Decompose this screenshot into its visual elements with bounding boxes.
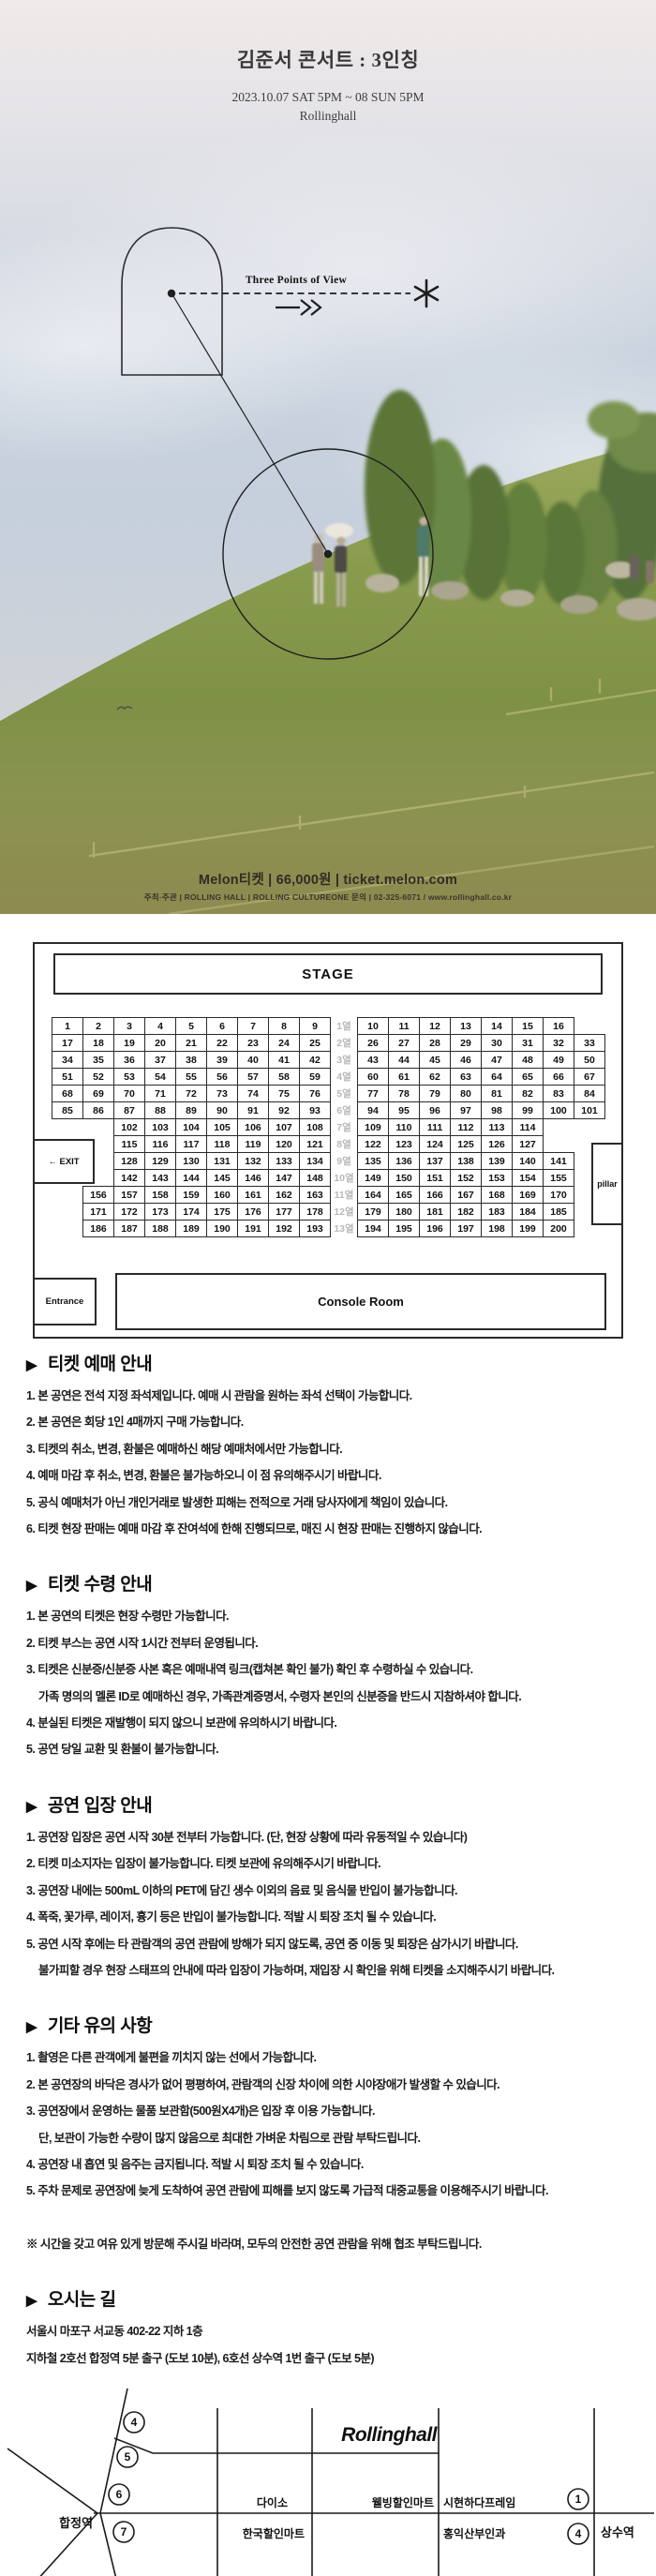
- seat: 118: [206, 1135, 238, 1153]
- seat: 128: [113, 1152, 145, 1170]
- hero-photo: Three Points of View 김준서 콘서트 : 3인칭 2023.…: [0, 0, 656, 914]
- seat: 13: [450, 1017, 482, 1035]
- seat: 167: [450, 1186, 482, 1204]
- seat: 110: [388, 1118, 420, 1136]
- seat: 182: [450, 1203, 482, 1221]
- seat: 157: [113, 1186, 145, 1204]
- seat: 153: [481, 1169, 513, 1187]
- seat: 147: [268, 1169, 300, 1187]
- seat: 200: [543, 1220, 574, 1237]
- event-date: 2023.10.07 SAT 5PM ~ 08 SUN 5PM: [0, 90, 656, 105]
- seat: 28: [419, 1034, 451, 1052]
- seat: 95: [388, 1101, 420, 1119]
- seat: 132: [237, 1152, 269, 1170]
- entrance-box: Entrance: [33, 1278, 97, 1325]
- seat: 34: [52, 1051, 83, 1069]
- seat: 31: [512, 1034, 544, 1052]
- seat-row: 18618718818919019119219313열1941951961971…: [52, 1220, 605, 1237]
- page-title: 김준서 콘서트 : 3인칭: [0, 0, 656, 73]
- row-label: 1열: [331, 1017, 357, 1035]
- seat: 89: [175, 1101, 207, 1119]
- section-title: ▶ 티켓 수령 안내: [26, 1570, 630, 1595]
- pillar-box: pillar: [591, 1143, 623, 1225]
- seat: 70: [113, 1085, 145, 1102]
- exit-5-badge: 5: [125, 2450, 131, 2464]
- seat: 61: [388, 1068, 420, 1086]
- seat: 29: [450, 1034, 482, 1052]
- info-line: 2. 본 공연장의 바닥은 경사가 없어 평평하여, 관람객의 신장 차이에 의…: [26, 2072, 630, 2098]
- seat: 8: [268, 1017, 300, 1035]
- row-label: 4열: [331, 1068, 357, 1086]
- console-room-label: Console Room: [318, 1295, 404, 1309]
- seat: 148: [299, 1169, 331, 1187]
- info-sections: ▶ 티켓 예매 안내1. 본 공연은 전석 지정 좌석제입니다. 예매 시 관람…: [0, 1350, 656, 2205]
- seat: 179: [357, 1203, 389, 1221]
- viewpoint-overlay: Three Points of View: [0, 0, 656, 914]
- seat: 87: [113, 1101, 145, 1119]
- seat: 111: [419, 1118, 451, 1136]
- seat: 18: [82, 1034, 114, 1052]
- stage-box: STAGE: [53, 953, 603, 995]
- seat: 16: [543, 1017, 574, 1035]
- seat: 108: [299, 1118, 331, 1136]
- row-label: 12열: [331, 1203, 357, 1221]
- map-hapjeong-label: 합정역: [59, 2516, 93, 2530]
- ticket-price-line: Melon티켓 | 66,000원 | ticket.melon.com: [0, 869, 656, 889]
- triangle-bullet-icon: ▶: [26, 1357, 37, 1373]
- seat: 160: [206, 1186, 238, 1204]
- seat: 113: [481, 1118, 513, 1136]
- info-section: ▶ 티켓 예매 안내1. 본 공연은 전석 지정 좌석제입니다. 예매 시 관람…: [26, 1350, 630, 1542]
- seat: 117: [175, 1135, 207, 1153]
- seat: 134: [299, 1152, 331, 1170]
- seat: 20: [144, 1034, 176, 1052]
- seat: 22: [206, 1034, 238, 1052]
- seat: 154: [512, 1169, 544, 1187]
- seat: 119: [237, 1135, 269, 1153]
- seat: 161: [237, 1186, 269, 1204]
- seat: 7: [237, 1017, 269, 1035]
- info-line: 2. 본 공연은 회당 1인 4매까지 구매 가능합니다.: [26, 1409, 630, 1435]
- seat: 77: [357, 1085, 389, 1102]
- seat: 35: [82, 1051, 114, 1069]
- seat: 40: [237, 1051, 269, 1069]
- exit-1-right-badge: 1: [575, 2493, 582, 2506]
- seat: 60: [357, 1068, 389, 1086]
- seat: 96: [419, 1101, 451, 1119]
- seat: 155: [543, 1169, 574, 1187]
- seat: 105: [206, 1118, 238, 1136]
- seat: 9: [299, 1017, 331, 1035]
- seat: 62: [419, 1068, 451, 1086]
- map-rollinghall-logo: Rollinghall: [341, 2424, 438, 2446]
- seat: 26: [357, 1034, 389, 1052]
- seat: 49: [543, 1051, 574, 1069]
- seat: 178: [299, 1203, 331, 1221]
- seat: 103: [144, 1118, 176, 1136]
- diagonal-sightline: [173, 296, 327, 552]
- seat: 94: [357, 1101, 389, 1119]
- seat: 135: [357, 1152, 389, 1170]
- info-section: ▶ 기타 유의 사항1. 촬영은 다른 관객에게 불편을 끼치지 않는 선에서 …: [26, 2012, 630, 2204]
- directions-title: ▶ 오시는 길: [26, 2285, 630, 2311]
- triangle-bullet-icon: ▶: [26, 1799, 37, 1815]
- section-title-text: 티켓 예매 안내: [43, 1355, 152, 1374]
- notice-line: ※ 시간을 갖고 여유 있게 방문해 주시길 바라며, 모두의 안전한 공연 관…: [26, 2231, 630, 2257]
- seat: 104: [175, 1118, 207, 1136]
- seat: 199: [512, 1220, 544, 1237]
- seat: 133: [268, 1152, 300, 1170]
- seat: 193: [299, 1220, 331, 1237]
- seat: 41: [268, 1051, 300, 1069]
- seat: 183: [481, 1203, 513, 1221]
- seat: 101: [574, 1101, 605, 1119]
- seat: 5: [175, 1017, 207, 1035]
- seat: 168: [481, 1186, 513, 1204]
- double-arrow-icon: [276, 300, 321, 315]
- seat: 181: [419, 1203, 451, 1221]
- seat: 4: [144, 1017, 176, 1035]
- exit-box: ← EXIT: [33, 1139, 95, 1184]
- seat: 32: [543, 1034, 574, 1052]
- seat: 52: [82, 1068, 114, 1086]
- seat: 46: [450, 1051, 482, 1069]
- seat: 33: [574, 1034, 605, 1052]
- seat-row: 1281291301311321331349열13513613713813914…: [52, 1152, 605, 1170]
- seat: 114: [512, 1118, 544, 1136]
- info-line: 가족 명의의 멜론 ID로 예매하신 경우, 가족관계증명서, 수령자 본인의 …: [26, 1684, 630, 1710]
- pillar-label: pillar: [597, 1179, 618, 1189]
- seat: 39: [206, 1051, 238, 1069]
- seat: 84: [574, 1085, 605, 1102]
- seat: 123: [388, 1135, 420, 1153]
- seat: 14: [481, 1017, 513, 1035]
- info-line: 1. 본 공연은 전석 지정 좌석제입니다. 예매 시 관람을 원하는 좌석 선…: [26, 1383, 630, 1409]
- seat: 66: [543, 1068, 574, 1086]
- seat: 91: [237, 1101, 269, 1119]
- seat: 37: [144, 1051, 176, 1069]
- seat: 195: [388, 1220, 420, 1237]
- section-title-text: 기타 유의 사항: [43, 2016, 152, 2036]
- seat: 1: [52, 1017, 83, 1035]
- seat: 57: [237, 1068, 269, 1086]
- seat: 100: [543, 1101, 574, 1119]
- seat: 44: [388, 1051, 420, 1069]
- map-hongik-clinic-label: 홍익산부인과: [443, 2526, 505, 2540]
- seat: 64: [481, 1068, 513, 1086]
- seat: 6: [206, 1017, 238, 1035]
- seat-row-indent: [52, 1118, 113, 1136]
- seat: 75: [268, 1085, 300, 1102]
- seat: 139: [481, 1152, 513, 1170]
- notice-wrap: ※ 시간을 갖고 여유 있게 방문해 주시길 바라며, 모두의 안전한 공연 관…: [0, 2231, 656, 2372]
- seat: 150: [388, 1169, 420, 1187]
- venue-name: Rollinghall: [0, 109, 656, 124]
- seat: 73: [206, 1085, 238, 1102]
- seat: 30: [481, 1034, 513, 1052]
- seat: 24: [268, 1034, 300, 1052]
- seat: 42: [299, 1051, 331, 1069]
- seat: 27: [388, 1034, 420, 1052]
- seat-row-indent: [52, 1203, 82, 1221]
- seat: 112: [450, 1118, 482, 1136]
- seating-chart: STAGE 1234567891열10111213141516171819202…: [33, 942, 623, 1339]
- seat: 196: [419, 1220, 451, 1237]
- seat: 65: [512, 1068, 544, 1086]
- seat: 82: [512, 1085, 544, 1102]
- row-label: 8열: [331, 1135, 357, 1153]
- seat: 81: [481, 1085, 513, 1102]
- row-label: 13열: [331, 1220, 357, 1237]
- asterisk-marker: [415, 280, 438, 307]
- seat: 19: [113, 1034, 145, 1052]
- seat: 194: [357, 1220, 389, 1237]
- map-daiso-label: 다이소: [257, 2495, 288, 2509]
- row-label: 2열: [331, 1034, 357, 1052]
- seat: 59: [299, 1068, 331, 1086]
- overlay-label: Three Points of View: [246, 275, 348, 286]
- seat: 152: [450, 1169, 482, 1187]
- seat: 170: [543, 1186, 574, 1204]
- focus-dot: [324, 550, 332, 558]
- seat: 120: [268, 1135, 300, 1153]
- seat-row: 15615715815916016116216311열1641651661671…: [52, 1186, 605, 1204]
- info-line: 3. 티켓은 신분증/신분증 사본 혹은 예매내역 링크(캡쳐본 확인 불가) …: [26, 1656, 630, 1683]
- seat: 136: [388, 1152, 420, 1170]
- seat: 83: [543, 1085, 574, 1102]
- viewpoint-dot: [168, 290, 175, 297]
- seat: 180: [388, 1203, 420, 1221]
- seat: 109: [357, 1118, 389, 1136]
- info-line: 1. 본 공연의 티켓은 현장 수령만 가능합니다.: [26, 1603, 630, 1629]
- seat: 72: [175, 1085, 207, 1102]
- seat: 174: [175, 1203, 207, 1221]
- seat: 141: [543, 1152, 574, 1170]
- info-line: 2. 티켓 미소지자는 입장이 불가능합니다. 티켓 보관에 유의해주시기 바랍…: [26, 1850, 630, 1877]
- exit-6-badge: 6: [116, 2488, 123, 2501]
- concert-info-poster: Three Points of View 김준서 콘서트 : 3인칭 2023.…: [0, 0, 656, 2576]
- seat-row: 17117217317417517617717812열1791801811821…: [52, 1203, 605, 1221]
- section-title-text: 티켓 수령 안내: [43, 1575, 152, 1595]
- seat: 165: [388, 1186, 420, 1204]
- info-line: 5. 공연 당일 교환 및 환불이 불가능합니다.: [26, 1736, 630, 1762]
- seat: 137: [419, 1152, 451, 1170]
- seat: 10: [357, 1017, 389, 1035]
- seat: 127: [512, 1135, 544, 1153]
- seat: 130: [175, 1152, 207, 1170]
- seat: 38: [175, 1051, 207, 1069]
- row-label: 6열: [331, 1101, 357, 1119]
- info-section: ▶ 공연 입장 안내1. 공연장 입장은 공연 시작 30분 전부터 가능합니다…: [26, 1791, 630, 1984]
- seat: 188: [144, 1220, 176, 1237]
- map-sangsu-label: 상수역: [601, 2525, 634, 2539]
- seat: 116: [144, 1135, 176, 1153]
- info-line: 단, 보관이 가능한 수량이 많지 않음으로 최대한 가벼운 차림으로 관람 부…: [26, 2125, 630, 2151]
- seat-row: 14214314414514614714810열1491501511521531…: [52, 1169, 605, 1187]
- seat: 69: [82, 1085, 114, 1102]
- seat: 102: [113, 1118, 145, 1136]
- row-label: 11열: [331, 1186, 357, 1204]
- row-label: 5열: [331, 1085, 357, 1102]
- seat: 93: [299, 1101, 331, 1119]
- seat: 176: [237, 1203, 269, 1221]
- seat: 92: [268, 1101, 300, 1119]
- directions-map: Rollinghall 합정역 상수역 다이소 웰빙할인마트 시현하다프레임 한…: [0, 2385, 656, 2576]
- seat-row: 1021031041051061071087열10911011111211311…: [52, 1118, 605, 1136]
- seat: 177: [268, 1203, 300, 1221]
- seat: 198: [481, 1220, 513, 1237]
- seat: 17: [52, 1034, 83, 1052]
- seat: 151: [419, 1169, 451, 1187]
- seat: 145: [206, 1169, 238, 1187]
- ticket-caption: Melon티켓 | 66,000원 | ticket.melon.com 주최·…: [0, 869, 656, 903]
- seat: 189: [175, 1220, 207, 1237]
- info-line: 3. 공연장 내에는 500mL 이하의 PET에 담긴 생수 이외의 음료 및…: [26, 1878, 630, 1904]
- seat: 186: [82, 1220, 114, 1237]
- seat-row: 1234567891열10111213141516: [52, 1017, 605, 1035]
- subway-line: 지하철 2호선 합정역 5분 출구 (도보 10분), 6호선 상수역 1번 출…: [26, 2345, 630, 2372]
- map-hanguk-mart-label: 한국할인마트: [243, 2526, 305, 2540]
- console-room-box: Console Room: [115, 1273, 606, 1330]
- seat: 67: [574, 1068, 605, 1086]
- triangle-bullet-icon: ▶: [26, 2293, 37, 2309]
- seat: 97: [450, 1101, 482, 1119]
- seat: 88: [144, 1101, 176, 1119]
- exit-4-left-badge: 4: [131, 2416, 138, 2429]
- seat: 169: [512, 1186, 544, 1204]
- seat: 172: [113, 1203, 145, 1221]
- seat: 74: [237, 1085, 269, 1102]
- seat-row: 1718192021222324252열2627282930313233: [52, 1034, 605, 1052]
- seat: 3: [113, 1017, 145, 1035]
- seat: 79: [419, 1085, 451, 1102]
- seat: 47: [481, 1051, 513, 1069]
- organizer-line: 주최·주관 | ROLLING HALL | ROLLING CULTUREON…: [0, 891, 656, 903]
- info-line: 5. 공연 시작 후에는 타 관람객의 공연 관람에 방해가 되지 않도록, 공…: [26, 1931, 630, 1957]
- seat: 45: [419, 1051, 451, 1069]
- seat: 190: [206, 1220, 238, 1237]
- row-label: 10열: [331, 1169, 357, 1187]
- seat: 90: [206, 1101, 238, 1119]
- section-title: ▶ 티켓 예매 안내: [26, 1350, 630, 1375]
- seat: 106: [237, 1118, 269, 1136]
- seat: 78: [388, 1085, 420, 1102]
- seat: 54: [144, 1068, 176, 1086]
- seat: 156: [82, 1186, 114, 1204]
- exit-7-badge: 7: [121, 2525, 127, 2539]
- seat: 191: [237, 1220, 269, 1237]
- entrance-label: Entrance: [46, 1296, 84, 1307]
- poster-header: 김준서 콘서트 : 3인칭 2023.10.07 SAT 5PM ~ 08 SU…: [0, 0, 656, 124]
- seat: 50: [574, 1051, 605, 1069]
- seat: 146: [237, 1169, 269, 1187]
- info-section: ▶ 티켓 수령 안내1. 본 공연의 티켓은 현장 수령만 가능합니다.2. 티…: [26, 1570, 630, 1762]
- seat: 158: [144, 1186, 176, 1204]
- seat: 163: [299, 1186, 331, 1204]
- seat: 149: [357, 1169, 389, 1187]
- stage-label: STAGE: [302, 966, 354, 982]
- row-label: 9열: [331, 1152, 357, 1170]
- seat: 175: [206, 1203, 238, 1221]
- row-label: 7열: [331, 1118, 357, 1136]
- info-line: 4. 분실된 티켓은 재발행이 되지 않으니 보관에 유의하시기 바랍니다.: [26, 1710, 630, 1736]
- seat-row: 5152535455565758594열6061626364656667: [52, 1068, 605, 1086]
- address-line: 서울시 마포구 서교동 402-22 지하 1층: [26, 2318, 630, 2344]
- seat: 58: [268, 1068, 300, 1086]
- seat: 2: [82, 1017, 114, 1035]
- seat: 126: [481, 1135, 513, 1153]
- seat: 11: [388, 1017, 420, 1035]
- seat: 99: [512, 1101, 544, 1119]
- seat-grid: 1234567891열10111213141516171819202122232…: [52, 1017, 605, 1237]
- seat: 51: [52, 1068, 83, 1086]
- map-roads: [7, 2389, 654, 2576]
- exit-label: ← EXIT: [48, 1157, 79, 1167]
- seat: 122: [357, 1135, 389, 1153]
- info-line: 불가피할 경우 현장 스태프의 안내에 따라 입장이 가능하며, 재입장 시 확…: [26, 1957, 630, 1984]
- seat: 107: [268, 1118, 300, 1136]
- seat-row: 6869707172737475765열7778798081828384: [52, 1085, 605, 1102]
- seat: 23: [237, 1034, 269, 1052]
- seat: 71: [144, 1085, 176, 1102]
- info-line: 3. 티켓의 취소, 변경, 환불은 예매하신 해당 예매처에서만 가능합니다.: [26, 1436, 630, 1462]
- seat: 12: [419, 1017, 451, 1035]
- info-line: 3. 공연장에서 운영하는 물품 보관함(500원X4개)은 입장 후 이용 가…: [26, 2098, 630, 2124]
- seat: 197: [450, 1220, 482, 1237]
- seat: 121: [299, 1135, 331, 1153]
- seat: 86: [82, 1101, 114, 1119]
- seat: 144: [175, 1169, 207, 1187]
- seat: 80: [450, 1085, 482, 1102]
- seat: 184: [512, 1203, 544, 1221]
- seat: 173: [144, 1203, 176, 1221]
- seat-row: 1151161171181191201218열12212312412512612…: [52, 1135, 605, 1153]
- seat: 21: [175, 1034, 207, 1052]
- triangle-bullet-icon: ▶: [26, 1578, 37, 1594]
- seat: 162: [268, 1186, 300, 1204]
- seat-row: 3435363738394041423열4344454647484950: [52, 1051, 605, 1069]
- seat: 185: [543, 1203, 574, 1221]
- seat: 125: [450, 1135, 482, 1153]
- seat: 76: [299, 1085, 331, 1102]
- section-title-text: 공연 입장 안내: [43, 1796, 152, 1816]
- seat: 68: [52, 1085, 83, 1102]
- seat: 115: [113, 1135, 145, 1153]
- seat: 131: [206, 1152, 238, 1170]
- seat: 171: [82, 1203, 114, 1221]
- seat: 56: [206, 1068, 238, 1086]
- info-line: 5. 공식 예매처가 아닌 개인거래로 발생한 피해는 전적으로 거래 당사자에…: [26, 1490, 630, 1516]
- seat: 142: [113, 1169, 145, 1187]
- seat: 63: [450, 1068, 482, 1086]
- seat: 140: [512, 1152, 544, 1170]
- seat: 129: [144, 1152, 176, 1170]
- seat: 138: [450, 1152, 482, 1170]
- seat: 43: [357, 1051, 389, 1069]
- seat: 166: [419, 1186, 451, 1204]
- seat: 164: [357, 1186, 389, 1204]
- seat: 15: [512, 1017, 544, 1035]
- seat-row: 8586878889909192936열949596979899100101: [52, 1101, 605, 1119]
- seat: 25: [299, 1034, 331, 1052]
- seat: 85: [52, 1101, 83, 1119]
- triangle-bullet-icon: ▶: [26, 2019, 37, 2035]
- info-line: 5. 주차 문제로 공연장에 늦게 도착하여 공연 관람에 피해를 보지 않도록…: [26, 2178, 630, 2204]
- info-line: 4. 예매 마감 후 취소, 변경, 환불은 불가능하오니 이 점 유의해주시기…: [26, 1462, 630, 1489]
- info-line: 1. 촬영은 다른 관객에게 불편을 끼치지 않는 선에서 가능합니다.: [26, 2044, 630, 2071]
- section-title: ▶ 공연 입장 안내: [26, 1791, 630, 1817]
- seat: 36: [113, 1051, 145, 1069]
